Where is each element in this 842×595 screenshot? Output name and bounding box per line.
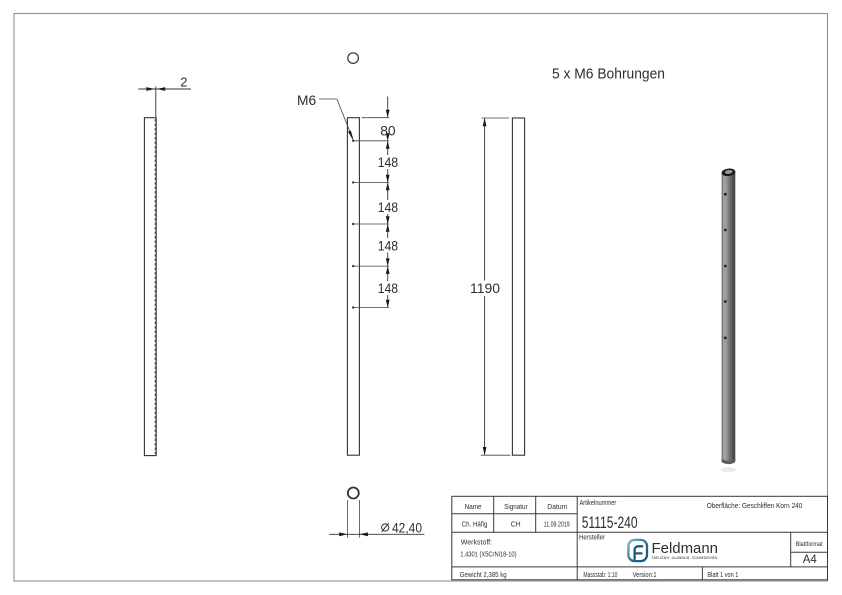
svg-text:CH: CH: [511, 521, 521, 528]
svg-text:51115-240: 51115-240: [582, 514, 638, 532]
svg-text:Massstab: 1:10: Massstab: 1:10: [583, 572, 617, 579]
svg-text:148: 148: [378, 199, 399, 215]
svg-text:Feldmann: Feldmann: [652, 540, 719, 557]
svg-text:2: 2: [180, 75, 187, 90]
svg-text:Ch. Häfig: Ch. Häfig: [462, 521, 488, 528]
svg-text:Blattformat: Blattformat: [796, 541, 823, 548]
svg-text:Hersteller: Hersteller: [579, 535, 606, 542]
svg-text:42,40: 42,40: [392, 520, 422, 535]
svg-text:5 x M6 Bohrungen: 5 x M6 Bohrungen: [552, 66, 665, 83]
svg-text:M6: M6: [297, 92, 316, 108]
svg-text:Werkstoff:: Werkstoff:: [461, 539, 492, 546]
svg-text:80: 80: [380, 123, 396, 139]
svg-text:Blatt 1 von 1: Blatt 1 von 1: [707, 572, 738, 579]
svg-text:1.4301 (X5CrNi18-10): 1.4301 (X5CrNi18-10): [460, 552, 516, 559]
svg-text:Artikelnummer: Artikelnummer: [580, 500, 617, 507]
svg-text:Datum: Datum: [547, 504, 567, 511]
svg-text:148: 148: [378, 280, 399, 296]
svg-text:148: 148: [378, 237, 399, 253]
svg-text:Gewicht 2,385 kg: Gewicht 2,385 kg: [460, 572, 507, 579]
svg-text:A4: A4: [803, 554, 818, 566]
svg-text:EDELSTAHL - ALUMINIUM - SCHMIE: EDELSTAHL - ALUMINIUM - SCHMIEDEEISEN: [652, 556, 718, 560]
svg-text:Version:1: Version:1: [633, 572, 657, 579]
svg-text:Signatur: Signatur: [504, 504, 528, 511]
svg-text:Name: Name: [465, 504, 482, 511]
svg-text:148: 148: [378, 154, 399, 170]
svg-text:1190: 1190: [470, 280, 500, 296]
svg-text:Oberfläche: Geschliffen Korn: Oberfläche: Geschliffen Korn 240: [707, 503, 803, 510]
svg-text:11.09.2019: 11.09.2019: [544, 521, 570, 528]
